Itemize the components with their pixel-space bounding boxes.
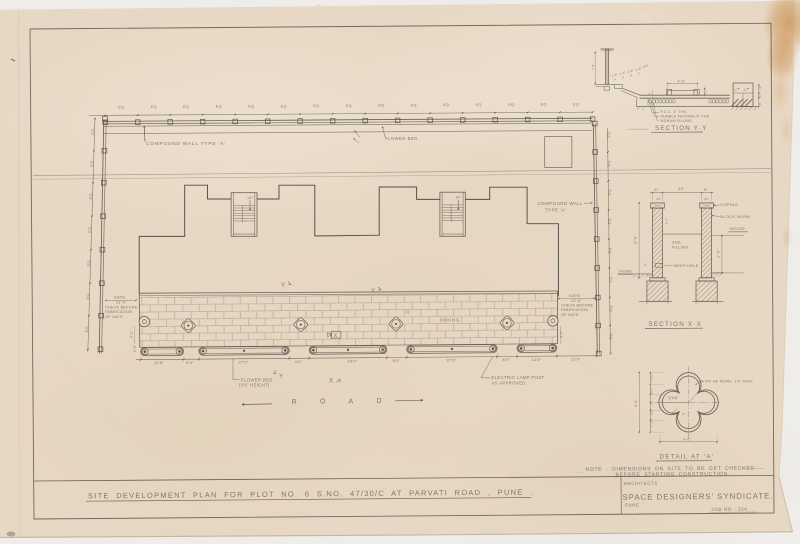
svg-text:WEEP HOLE: WEEP HOLE	[673, 264, 698, 268]
svg-text:4½": 4½"	[704, 197, 709, 201]
svg-text:1'0": 1'0"	[704, 88, 708, 93]
svg-text:10½": 10½"	[649, 387, 653, 394]
svg-text:Y: Y	[281, 283, 285, 289]
svg-text:4'0": 4'0"	[295, 359, 303, 364]
svg-text:EQ: EQ	[443, 103, 449, 107]
svg-text:EQ: EQ	[607, 276, 612, 282]
svg-text:PAVING: PAVING	[440, 317, 460, 322]
svg-text:EQ: EQ	[346, 104, 352, 108]
svg-text:EQ: EQ	[216, 105, 222, 109]
svg-text:EQ: EQ	[608, 333, 613, 339]
svg-text:EQ: EQ	[85, 293, 90, 299]
svg-text:ELECTRIC LAMP POST: ELECTRIC LAMP POST	[492, 375, 545, 380]
svg-text:RUBBLE PACKING 9" THK.: RUBBLE PACKING 9" THK.	[661, 115, 711, 119]
svg-text:D: D	[377, 398, 383, 405]
svg-text:JOB NO - 334: JOB NO - 334	[711, 507, 747, 512]
svg-text:27'0": 27'0"	[238, 359, 248, 364]
svg-text:INSIDE: INSIDE	[730, 226, 745, 231]
svg-text:1'6": 1'6"	[758, 86, 762, 91]
svg-text:4'-6": 4'-6"	[683, 437, 691, 441]
svg-text:6'0": 6'0"	[186, 360, 194, 365]
svg-text:6": 6"	[646, 273, 650, 276]
svg-text:'A': 'A'	[405, 310, 411, 315]
svg-text:6": 6"	[655, 188, 659, 192]
svg-text:COMPOUND WALL TYPE 'A': COMPOUND WALL TYPE 'A'	[146, 141, 226, 146]
svg-text:SECTION X·X: SECTION X·X	[648, 321, 702, 328]
svg-text:ROAD: ROAD	[619, 269, 632, 274]
svg-text:EQ: EQ	[508, 103, 514, 107]
svg-text:OF GATE.: OF GATE.	[105, 315, 124, 319]
svg-text:GATE: GATE	[569, 293, 581, 298]
svg-text:PUNE.: PUNE.	[625, 503, 641, 508]
svg-text:9": 9"	[758, 102, 762, 105]
svg-text:1'-3": 1'-3"	[664, 218, 668, 224]
svg-text:12'8": 12'8"	[154, 360, 164, 365]
svg-text:ARCHITECTS: ARCHITECTS	[624, 481, 658, 486]
svg-text:4'-6": 4'-6"	[634, 399, 638, 407]
svg-text:EQ: EQ	[541, 103, 547, 107]
svg-text:4½": 4½"	[656, 197, 661, 201]
svg-text:FABRICATION: FABRICATION	[561, 308, 588, 312]
svg-text:SPACE DESIGNERS' SYNDICATE.: SPACE DESIGNERS' SYNDICATE.	[622, 491, 773, 501]
svg-text:EQ: EQ	[606, 160, 611, 166]
svg-text:12'0": 12'0"	[571, 357, 581, 362]
svg-text:Y: Y	[371, 289, 375, 295]
svg-text:X: X	[329, 379, 333, 385]
svg-text:EQ: EQ	[118, 105, 124, 109]
svg-text:EQ: EQ	[607, 218, 612, 224]
svg-text:12'-0": 12'-0"	[116, 301, 127, 305]
svg-text:6'0": 6'0"	[393, 358, 401, 363]
svg-text:BLOCK WORK: BLOCK WORK	[720, 214, 750, 219]
svg-text:EQ: EQ	[378, 104, 384, 108]
svg-text:10½": 10½"	[649, 409, 653, 416]
svg-text:MORUM FILLING: MORUM FILLING	[661, 119, 693, 123]
svg-text:EQ: EQ	[476, 103, 482, 107]
svg-text:A: A	[349, 398, 354, 405]
svg-text:4½": 4½"	[758, 93, 762, 98]
svg-text:9": 9"	[644, 263, 648, 266]
svg-text:TYPE 'A': TYPE 'A'	[545, 208, 566, 213]
svg-text:CHECK BEFORE: CHECK BEFORE	[105, 306, 138, 310]
svg-text:EQ: EQ	[573, 102, 579, 106]
svg-text:BEFORE STARTING CONSTRUCTION.: BEFORE STARTING CONSTRUCTION.	[615, 471, 730, 478]
svg-text:EQ: EQ	[183, 105, 189, 109]
svg-text:AS APPROVED: AS APPROVED	[492, 381, 526, 386]
svg-text:EQ: EQ	[607, 247, 612, 253]
svg-text:Y: Y	[279, 374, 283, 380]
svg-text:12'8": 12'8"	[531, 357, 541, 362]
svg-text:EQ: EQ	[411, 103, 417, 107]
svg-text:EQ: EQ	[87, 227, 92, 233]
svg-text:6'-0": 6'-0"	[560, 330, 564, 338]
svg-text:O: O	[320, 399, 326, 406]
svg-text:1'-6"R: 1'-6"R	[669, 397, 678, 401]
svg-text:7'-6": 7'-6"	[591, 64, 595, 70]
svg-text:P.C.C. 4" THK.: P.C.C. 4" THK.	[661, 110, 688, 114]
svg-text:(3'6" HEIGHT): (3'6" HEIGHT)	[239, 383, 270, 388]
svg-text:EQ: EQ	[86, 260, 91, 266]
svg-text:EQ: EQ	[313, 104, 319, 108]
svg-text:COPING: COPING	[720, 202, 738, 207]
svg-text:FABRICATION: FABRICATION	[105, 310, 132, 314]
svg-text:CHECK BEFORE: CHECK BEFORE	[561, 304, 594, 308]
svg-text:EQ: EQ	[88, 193, 93, 199]
svg-text:DETAIL AT 'A': DETAIL AT 'A'	[660, 453, 715, 460]
svg-text:FILLING.: FILLING.	[672, 245, 690, 249]
svg-text:OF GATE.: OF GATE.	[561, 313, 580, 317]
svg-text:FLOWER BED: FLOWER BED	[385, 136, 418, 141]
svg-text:4'-6": 4'-6"	[678, 79, 686, 83]
svg-text:UP: UP	[248, 196, 254, 200]
svg-text:24'0": 24'0"	[347, 358, 357, 363]
svg-text:EQ: EQ	[90, 128, 95, 134]
svg-text:2'-6": 2'-6"	[717, 249, 721, 258]
svg-text:12'-0": 12'-0"	[571, 299, 582, 303]
svg-text:6": 6"	[704, 188, 708, 192]
svg-text:4": 4"	[648, 92, 652, 95]
svg-text:EQ: EQ	[89, 160, 94, 166]
svg-text:9": 9"	[683, 412, 686, 416]
svg-text:4½" BK WORK. 1'0" HIGH: 4½" BK WORK. 1'0" HIGH	[705, 379, 753, 383]
svg-text:3'0": 3'0"	[678, 187, 685, 191]
svg-text:EQ: EQ	[608, 305, 613, 311]
svg-text:FLOWER BED: FLOWER BED	[241, 377, 273, 382]
svg-text:R: R	[292, 399, 298, 406]
svg-text:EQ: EQ	[281, 104, 287, 108]
svg-text:27'0": 27'0"	[446, 358, 456, 363]
svg-text:X: X	[334, 333, 338, 339]
svg-text:COMPOUND WALL: COMPOUND WALL	[538, 201, 584, 206]
svg-text:6'-0": 6'-0"	[130, 330, 134, 338]
svg-text:1'-0¾": 1'-0¾"	[649, 418, 653, 427]
svg-text:EQ: EQ	[84, 326, 89, 332]
svg-text:EQ: EQ	[151, 105, 157, 109]
svg-text:GATE: GATE	[114, 295, 126, 300]
svg-text:UP: UP	[456, 196, 462, 200]
svg-text:SOIL: SOIL	[672, 241, 682, 245]
svg-text:EQ: EQ	[606, 189, 611, 195]
svg-text:SECTION Y·Y: SECTION Y·Y	[655, 125, 708, 132]
svg-text:3'-6": 3'-6"	[633, 235, 637, 244]
svg-text:EQ: EQ	[606, 131, 611, 137]
svg-text:1'-0¾": 1'-0¾"	[649, 373, 653, 382]
svg-text:3'-0": 3'-0"	[133, 345, 137, 352]
svg-text:EQ: EQ	[248, 105, 254, 109]
svg-text:6'0": 6'0"	[503, 357, 511, 362]
